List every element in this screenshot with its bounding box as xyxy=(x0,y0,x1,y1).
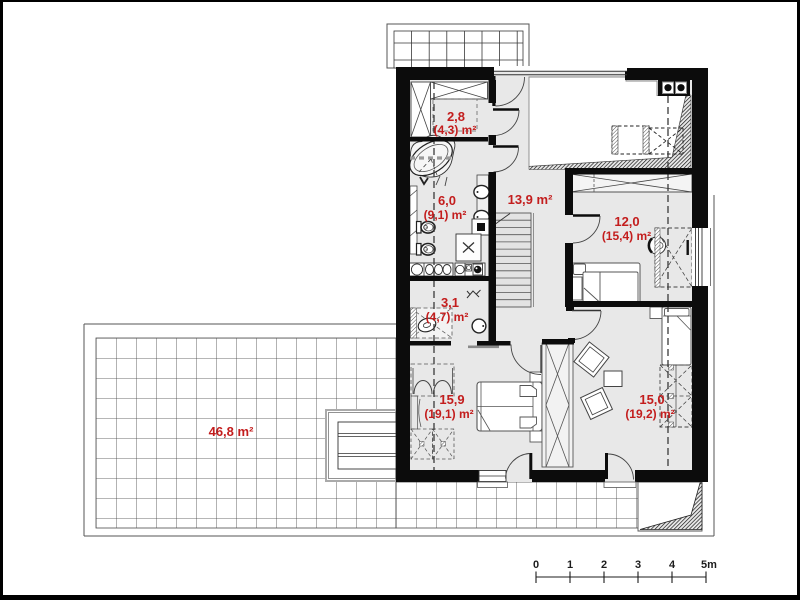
svg-text:0: 0 xyxy=(533,559,539,571)
svg-text:3,1: 3,1 xyxy=(441,295,459,310)
svg-text:(15,4) m²: (15,4) m² xyxy=(602,229,651,243)
svg-text:4: 4 xyxy=(669,559,676,571)
svg-text:6,0: 6,0 xyxy=(438,193,456,208)
svg-text:2,8: 2,8 xyxy=(447,109,465,124)
svg-text:3: 3 xyxy=(635,559,641,571)
svg-text:5m: 5m xyxy=(701,559,717,571)
svg-text:(4,3) m²: (4,3) m² xyxy=(434,123,477,137)
svg-text:1: 1 xyxy=(567,559,573,571)
svg-text:46,8 m²: 46,8 m² xyxy=(209,424,254,439)
svg-text:2: 2 xyxy=(601,559,607,571)
svg-text:(4,7) m²: (4,7) m² xyxy=(426,310,469,324)
svg-text:15,9: 15,9 xyxy=(439,392,464,407)
svg-text:12,0: 12,0 xyxy=(614,214,639,229)
svg-text:(9,1) m²: (9,1) m² xyxy=(424,208,467,222)
svg-text:15,0: 15,0 xyxy=(639,392,664,407)
svg-text:13,9 m²: 13,9 m² xyxy=(508,192,553,207)
svg-text:(19,1) m²: (19,1) m² xyxy=(424,407,473,421)
svg-text:(19,2) m²: (19,2) m² xyxy=(625,407,674,421)
